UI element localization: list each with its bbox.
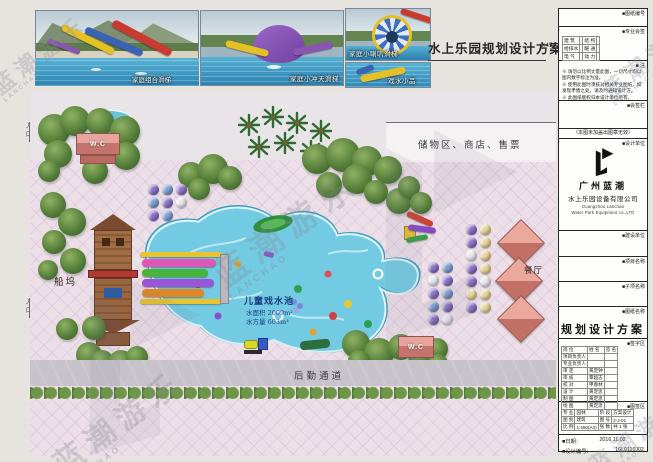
tb-header: ■签字区 [627, 340, 645, 347]
pool-volume-label: 水方量 603m³ [246, 316, 289, 326]
dock-body [94, 230, 132, 270]
tree [82, 316, 106, 340]
dock-band [88, 270, 138, 278]
umbrella-dot [442, 301, 453, 312]
dock-body [94, 278, 132, 320]
umbrella-dot [442, 275, 453, 286]
tb-header: ■图纸编号 [622, 10, 645, 17]
photo-water-feature: 戏水小品 [345, 62, 431, 88]
tb-header: ■建设单位 [622, 232, 645, 239]
tb-date-serial: ■日期：2016.11.02 ■设计编号：16L0110J02 [559, 435, 647, 451]
umbrella-cluster-east [428, 262, 454, 325]
dock-window [104, 288, 122, 298]
wc-top-label: W.C [90, 141, 106, 148]
photo-caption: 家庭小喇叭滑梯 [349, 48, 398, 58]
umbrella-dot [428, 314, 439, 325]
tb-notes: ■ 注 ※ 请勿以比例丈量此图，一切尺寸均以图内数字标注为准。 ※ 使用此图时须… [559, 61, 647, 101]
wc-top-building: W.C [76, 133, 120, 155]
date-value: 2016.11.02 [599, 437, 625, 445]
tb-header: ■图纸名称 [622, 308, 645, 315]
rack-platform [220, 254, 229, 304]
info-table: 专 业园林阶 段方案设计 图 别建筑图 号2-J-01 比 例1:450(A3)… [561, 409, 634, 431]
umbrella-dot [466, 276, 477, 287]
umbrella-dot [466, 250, 477, 261]
service-road-label: 后勤通道 [294, 368, 344, 382]
service-road [30, 360, 556, 386]
palm-tree-icon [272, 130, 298, 156]
umbrella-dot [480, 224, 491, 235]
company-name-en2: Water Park Equipment co.,LTD [571, 210, 634, 215]
titleblock: ■图纸编号 ■专业会签 建 筑结 构 给排水暖 通 电 气动 力 ■ 注 ※ 请… [558, 8, 648, 452]
umbrella-dot [442, 314, 453, 325]
site-plan: 储物区、商店、售票 W.C [30, 92, 556, 456]
tree [56, 318, 78, 340]
tb-header: ■会签栏 [627, 102, 645, 109]
date-label: ■日期： [562, 437, 581, 445]
dock-label: 船坞 [54, 274, 77, 288]
photo-caption: 家庭小冲天滑梯 [290, 73, 339, 83]
photo-caption: 戏水小品 [388, 75, 416, 85]
tb-header: ■专业会签 [622, 28, 645, 35]
tb-discipline-signoff: ■专业会签 建 筑结 构 给排水暖 通 电 气动 力 [559, 27, 647, 61]
photo-trumpet-slide: 家庭小喇叭滑梯 [345, 8, 431, 61]
purple-tube [142, 279, 214, 287]
company-logo [591, 148, 615, 177]
umbrella-dot [428, 288, 439, 299]
company-name-cn: 广州蓝潮 [579, 179, 627, 192]
palm-tree-icon [260, 104, 286, 130]
photo-caption: 家庭组合滑梯 [132, 74, 171, 84]
umbrella-dot [442, 288, 453, 299]
umbrella-dot [442, 262, 453, 273]
pool-name-label: 儿童戏水池 [244, 294, 294, 307]
tb-header: ■子项名称 [622, 283, 645, 290]
umbrella-dot [428, 275, 439, 286]
wc-bottom-label: W.C [408, 344, 424, 351]
tb-build-unit: ■建设单位 [559, 231, 647, 257]
photo-small-tower-slide: 家庭小冲天滑梯 [200, 10, 344, 86]
restaurant-label: 餐厅 [524, 264, 543, 276]
sheet-name: 规划设计方案 [559, 321, 647, 337]
rack-rail [140, 252, 222, 257]
tree [218, 166, 242, 190]
umbrella-dot [466, 224, 477, 235]
wc-top-roof-lower [80, 155, 116, 164]
tb-header: ■ 注 [636, 62, 645, 69]
notes-text: ※ 请勿以比例丈量此图，一切尺寸均以图内数字标注为准。 ※ 使用此图时须核对相关… [562, 69, 645, 103]
umbrella-dot [480, 263, 491, 274]
rack-rail [140, 299, 222, 304]
tree [58, 208, 86, 236]
kiosk-yellow [244, 340, 258, 349]
storage-shop-ticket-building: 储物区、商店、售票 [386, 122, 556, 162]
tb-design-unit: ■设计单位 广州蓝潮 水上乐园设备有限公司 Guangzhou Lanchao … [559, 139, 647, 231]
dock-window [102, 238, 110, 246]
umbrella-dot [466, 302, 477, 313]
storage-shop-ticket-label: 储物区、商店、售票 [418, 137, 522, 151]
umbrella-dot [466, 289, 477, 300]
hedge-strip [30, 384, 556, 399]
orange-tube [142, 289, 204, 297]
sheet-scale: 1:450 [540, 42, 556, 49]
tb-signature-area: ■签字区 岗 位姓 名签 名 项目负责人 专业负责人 审 定黄定钟 审 核覃超志… [559, 339, 647, 402]
umbrella-dot [428, 301, 439, 312]
umbrella-dot [466, 237, 477, 248]
dock-window [116, 238, 124, 246]
umbrella-dot [480, 289, 491, 300]
photo-1-caption-layer: 家庭组合滑梯 [35, 10, 199, 86]
tb-header: ■项目名称 [622, 258, 645, 265]
restaurant-tables [466, 224, 492, 313]
tree [38, 160, 60, 182]
serial-label: ■设计编号： [562, 447, 592, 455]
tb-countersign: ■会签栏 [559, 101, 647, 129]
tree [60, 248, 86, 274]
restaurant-tent [497, 295, 545, 343]
tree [42, 230, 66, 254]
discipline-table: 建 筑结 构 给排水暖 通 电 气动 力 [562, 36, 600, 61]
kiosk-base [244, 350, 262, 354]
kiosk-blue [258, 338, 268, 350]
umbrella-dot [480, 276, 491, 287]
tb-info-area: ■图签区 专 业园林阶 段方案设计 图 别建筑图 号2-J-01 比 例1:45… [559, 402, 647, 435]
dock-roof [90, 214, 136, 230]
tb-sheet-name: ■图纸名称 规划设计方案 [559, 307, 647, 339]
umbrella-dot [466, 263, 477, 274]
company-name-cn2: 水上乐园设备有限公司 [568, 193, 638, 203]
umbrella-dot [480, 302, 491, 313]
wc-bottom-building: W.C [398, 336, 434, 358]
serial-value: 16L0110J02 [615, 447, 644, 455]
tb-project-name: ■项目名称 [559, 257, 647, 282]
funnel-hole [386, 31, 398, 43]
pink-tube [142, 259, 216, 267]
sheet-title: 水上乐园规划设计方案 [428, 38, 546, 61]
tb-stamp-note: （本图未加盖出图章无效） [559, 129, 647, 139]
splash [267, 65, 281, 69]
drawing-sheet: 蓝潮游乐LANCHAO 蓝潮游乐LANCHAO 蓝潮游乐LANCHAO 蓝潮游乐… [0, 0, 653, 462]
umbrella-dot [428, 262, 439, 273]
tb-subproject-name: ■子项名称 [559, 282, 647, 307]
palm-tree-icon [246, 134, 272, 160]
umbrella-dot [480, 250, 491, 261]
tb-drawing-number: ■图纸编号 [559, 9, 647, 27]
tb-header: ■设计单位 [622, 140, 645, 147]
green-tube [142, 269, 208, 277]
umbrella-dot [480, 237, 491, 248]
signature-table: 岗 位姓 名签 名 项目负责人 专业负责人 审 定黄定钟 审 核覃超志 校 对甲… [561, 346, 618, 410]
company-name-en: Guangzhou Lanchao [582, 204, 624, 209]
